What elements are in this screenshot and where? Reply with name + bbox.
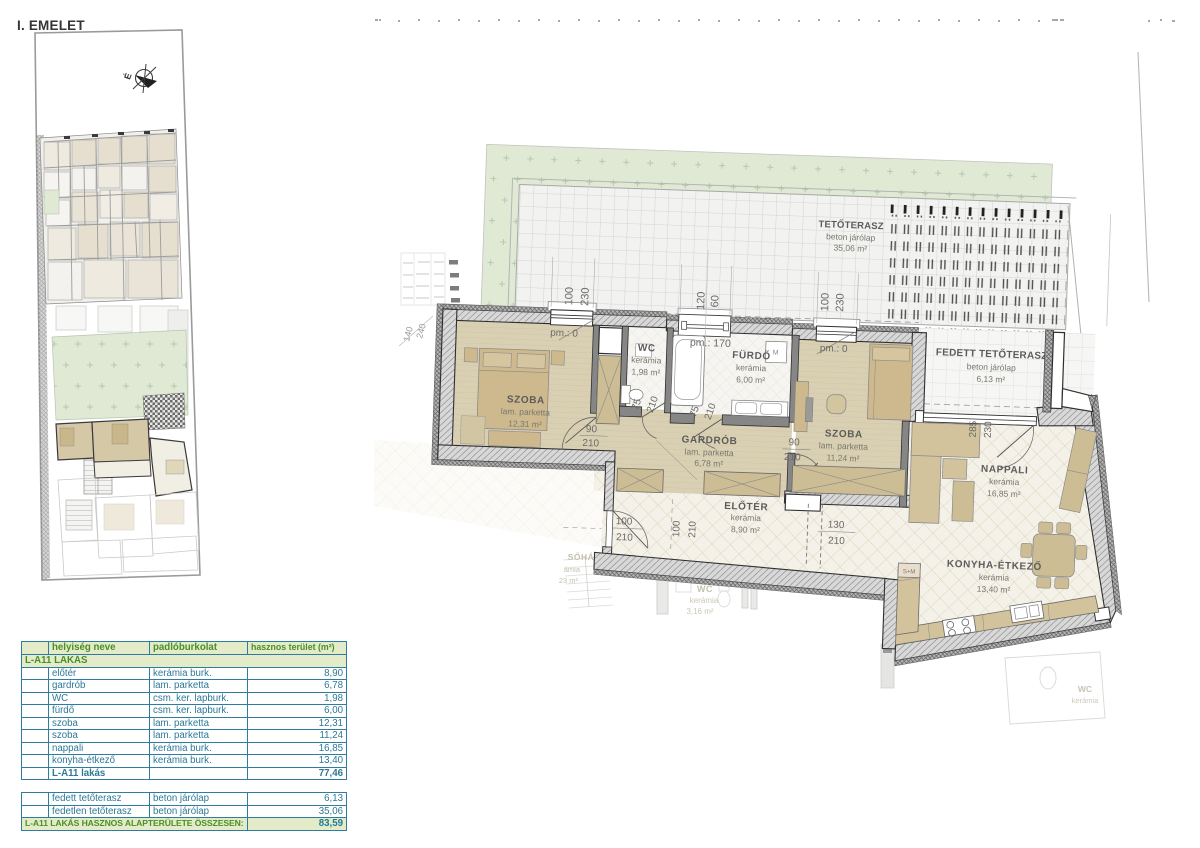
svg-text:kerámia: kerámia [631,355,662,366]
svg-text:lam. parketta: lam. parketta [819,440,869,452]
svg-text:kerámia: kerámia [979,572,1010,583]
svg-text:3,16 m²: 3,16 m² [686,607,713,616]
svg-text:11,24 m²: 11,24 m² [826,452,859,463]
svg-text:8,90 m²: 8,90 m² [731,524,760,535]
svg-text:pm.: 170: pm.: 170 [690,337,731,350]
svg-text:lam. parketta: lam. parketta [501,406,551,418]
svg-text:16,85 m²: 16,85 m² [987,488,1021,499]
svg-text:60: 60 [709,295,721,308]
svg-text:TETŐTERASZ: TETŐTERASZ [818,218,884,232]
svg-text:ámia: ámia [564,565,581,574]
svg-text:1,98 m²: 1,98 m² [631,367,660,378]
svg-text:WC: WC [1078,684,1092,694]
svg-text:210: 210 [616,532,633,544]
svg-text:WC: WC [697,584,713,594]
svg-text:NAPPALI: NAPPALI [981,464,1029,477]
svg-text:6,13 m²: 6,13 m² [976,374,1005,385]
svg-text:210: 210 [687,520,699,537]
svg-text:230: 230 [983,421,995,438]
svg-text:pm.: 0: pm.: 0 [550,328,579,340]
svg-text:kerámia: kerámia [736,362,767,373]
svg-text:90: 90 [788,437,800,448]
svg-text:100: 100 [671,520,683,537]
svg-text:35,06 m²: 35,06 m² [833,243,867,254]
svg-text:beton járólap: beton járólap [826,231,876,243]
svg-text:230: 230 [834,293,847,312]
svg-text:SZOBA: SZOBA [825,428,863,440]
svg-text:13,40 m²: 13,40 m² [977,584,1011,595]
svg-text:12,31 m²: 12,31 m² [508,418,542,429]
svg-text:kerámia: kerámia [989,476,1020,487]
svg-text:120: 120 [695,291,708,310]
svg-text:23 m²: 23 m² [559,576,579,585]
svg-text:90: 90 [586,424,598,435]
svg-text:WC: WC [638,343,656,355]
svg-text:kerámia: kerámia [731,512,762,523]
svg-text:S+M: S+M [903,569,916,575]
svg-text:100: 100 [819,293,832,312]
svg-text:100: 100 [615,516,632,528]
svg-text:pm.: 0: pm.: 0 [820,343,849,355]
svg-text:130: 130 [827,519,844,531]
svg-text:lam. parketta: lam. parketta [684,446,734,458]
svg-text:285: 285 [968,420,980,437]
svg-text:beton járólap: beton járólap [967,361,1017,373]
svg-text:210: 210 [582,438,599,450]
svg-text:210: 210 [828,536,845,548]
svg-text:kerámia: kerámia [1072,696,1100,705]
svg-text:SZOBA: SZOBA [507,394,545,406]
svg-text:230: 230 [579,287,592,306]
svg-text:100: 100 [563,287,576,306]
svg-text:6,00 m²: 6,00 m² [736,374,765,385]
svg-text:M: M [773,349,779,356]
svg-text:6,78 m²: 6,78 m² [694,458,723,469]
svg-text:210: 210 [784,452,801,464]
svg-text:kerámia: kerámia [690,596,719,605]
